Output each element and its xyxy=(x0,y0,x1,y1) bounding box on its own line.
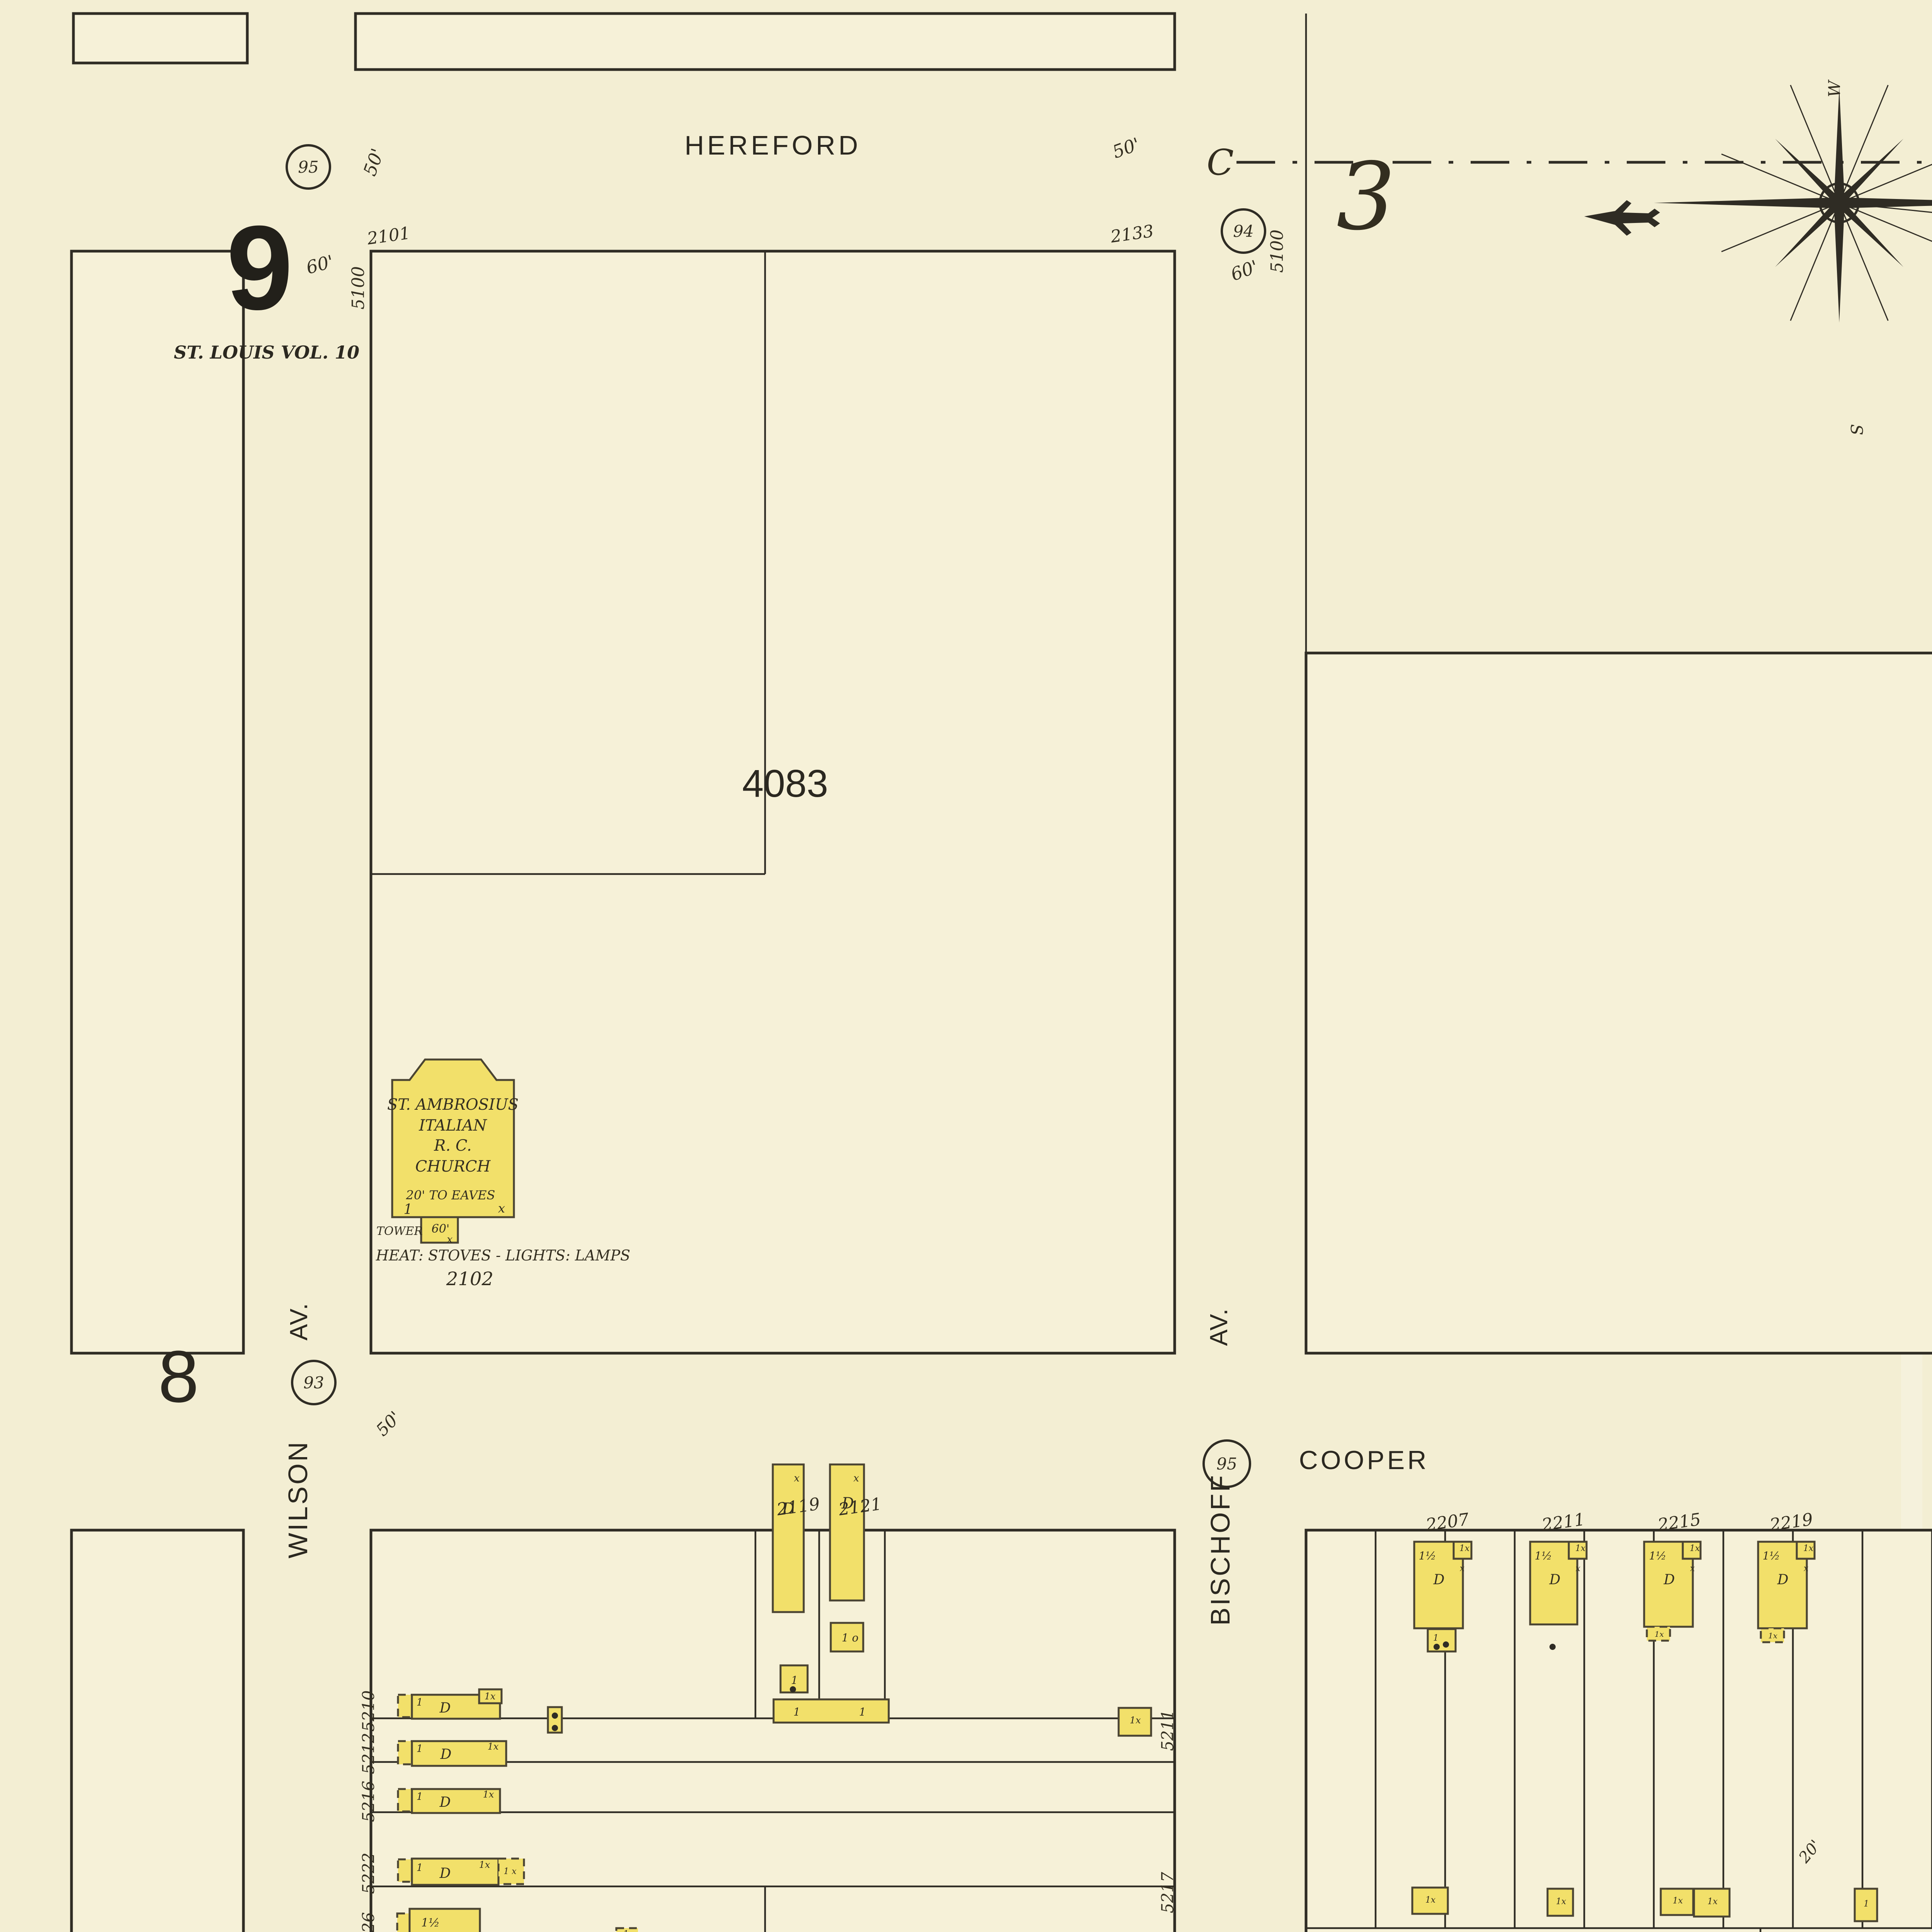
building-annotation-label: D xyxy=(1549,1572,1561,1588)
page-number-label: 8 xyxy=(158,1336,199,1418)
city-block-outline xyxy=(355,14,1175,70)
street-name-label: BISCHOFF xyxy=(1205,1473,1235,1626)
building-annotation-label: x xyxy=(1804,1564,1809,1573)
lot-number-label: 5100 xyxy=(349,266,368,310)
building-annotation-label: 1 xyxy=(417,1791,423,1803)
lot-number-label: 5216 xyxy=(359,1781,378,1822)
building-annotation-label: D xyxy=(439,1794,451,1810)
building-annotation-label: 1x xyxy=(1556,1897,1566,1906)
compass-center-dot xyxy=(1835,199,1843,207)
building-annotation-label: 1 xyxy=(417,1743,423,1755)
building-annotation-label: 1x xyxy=(1673,1896,1683,1906)
dimension-label: 20' TO EAVES xyxy=(406,1188,495,1202)
building-annotation-label: 1x xyxy=(485,1691,496,1702)
city-block-outline xyxy=(1306,653,1932,1353)
building-annotation-label: 1½ xyxy=(1535,1549,1552,1562)
lot-number-label: 5210 xyxy=(359,1690,378,1732)
building-annotation-label: 1 xyxy=(791,1674,798,1687)
building-annotation-label: 1 o xyxy=(842,1631,859,1644)
city-block-outline xyxy=(71,1530,243,1932)
building-opening-dot xyxy=(1434,1644,1440,1650)
building-opening-dot xyxy=(552,1713,558,1719)
building-annotation-label: 3 xyxy=(1337,143,1396,251)
building-annotation-label: 1x xyxy=(1708,1897,1718,1906)
building-annotation-label: TOWER xyxy=(376,1225,423,1238)
lot-number-label: 5226 xyxy=(359,1912,378,1932)
street-name-label: WILSON xyxy=(283,1440,313,1558)
building-annotation-label: x xyxy=(794,1473,800,1484)
page-number-label: AV. xyxy=(285,1303,313,1341)
page-number-label: AV. xyxy=(1205,1308,1233,1346)
building-annotation-label: 1½ xyxy=(1649,1549,1667,1562)
building-footprint xyxy=(398,1789,412,1811)
building-annotation-label: D xyxy=(439,1700,451,1716)
building-annotation-label: 1½ xyxy=(421,1916,440,1930)
building-annotation-label: x xyxy=(447,1234,453,1245)
building-annotation-label: 1½ xyxy=(1763,1549,1780,1562)
building-annotation-label: 1 xyxy=(417,1862,423,1874)
building-annotation-label: 1x xyxy=(1425,1895,1436,1905)
building-annotation-label: C xyxy=(1207,142,1234,183)
sheet-reference-number: 95 xyxy=(1216,1454,1237,1473)
street-name-label: 4083 xyxy=(742,762,828,805)
building-footprint xyxy=(398,1741,412,1764)
building-annotation-label: D xyxy=(1433,1572,1445,1588)
building-annotation-label: ITALIAN xyxy=(418,1117,487,1134)
building-annotation-label: 1x xyxy=(479,1859,490,1870)
building-annotation-label: 1 xyxy=(859,1706,866,1718)
building-annotation-label: 1x xyxy=(1655,1629,1664,1639)
building-footprint xyxy=(830,1464,864,1600)
building-annotation-label: 1 xyxy=(404,1202,413,1218)
building-annotation-label: 1x xyxy=(623,1929,634,1932)
page-number-label: 9 xyxy=(226,201,293,335)
city-block-outline xyxy=(1306,1530,1932,1932)
building-annotation-label: 1x xyxy=(1575,1544,1586,1553)
building-annotation-label: 1x xyxy=(1803,1544,1814,1553)
building-footprint xyxy=(1428,1629,1456,1651)
building-opening-dot xyxy=(1549,1644,1556,1650)
building-annotation-label: x xyxy=(1460,1564,1465,1573)
street-name-label: HEREFORD xyxy=(685,130,861,160)
map-canvas: 1212D1B11 oxx1212D1B11 oxx1212D1B11 oxx1… xyxy=(0,0,1932,1932)
building-annotation-label: 1½ xyxy=(1419,1549,1436,1562)
building-annotation-label: S xyxy=(1847,424,1866,435)
building-opening-dot xyxy=(552,1725,558,1731)
building-annotation-label: 1x xyxy=(1130,1715,1141,1726)
lot-number-label: 5222 xyxy=(359,1853,378,1894)
lot-number-label: 5100 xyxy=(1267,230,1287,273)
lot-number-label: 2102 xyxy=(446,1268,493,1290)
building-annotation-label: 1x xyxy=(1690,1544,1700,1553)
building-annotation-label: 1 xyxy=(1864,1899,1869,1909)
lot-number-label: 5212 xyxy=(359,1733,378,1774)
building-annotation-label: 1x xyxy=(483,1789,494,1800)
building-annotation-label: x xyxy=(1690,1564,1695,1573)
lot-number-label: 5217 xyxy=(1158,1872,1177,1913)
building-annotation-label: D xyxy=(782,1500,794,1518)
building-annotation-label: D xyxy=(439,1866,451,1881)
building-annotation-label: D xyxy=(841,1495,854,1512)
building-footprint xyxy=(410,1909,480,1932)
building-annotation-label: W xyxy=(1825,79,1844,97)
city-block-outline xyxy=(71,251,243,1353)
sanborn-fire-insurance-map-sheet: 1212D1B11 oxx1212D1B11 oxx1212D1B11 oxx1… xyxy=(0,0,1932,1932)
building-annotation-label: x xyxy=(498,1201,505,1216)
building-annotation-label: 1 xyxy=(793,1706,800,1718)
sheet-reference-number: 94 xyxy=(1233,222,1253,241)
building-annotation-label: x xyxy=(1576,1564,1581,1573)
building-annotation-label: 1 xyxy=(417,1697,423,1708)
building-annotation-label: 1x xyxy=(488,1741,499,1752)
building-annotation-label: CHURCH xyxy=(415,1158,491,1175)
building-annotation-label: D xyxy=(440,1747,452,1762)
building-annotation-label: D xyxy=(1777,1572,1789,1588)
building-annotation-label: ST. LOUIS VOL. 10 xyxy=(174,342,359,363)
building-annotation-label: ST. AMBROSIUS xyxy=(387,1096,519,1114)
building-annotation-label: 1x xyxy=(1768,1631,1777,1640)
city-block-outline xyxy=(73,14,247,63)
building-opening-dot xyxy=(790,1686,796,1692)
building-annotation-label: 1x xyxy=(1459,1544,1470,1553)
building-annotation-label: x xyxy=(854,1473,859,1484)
building-annotation-label: R. C. xyxy=(434,1137,471,1155)
building-annotation-label: HEAT: STOVES - LIGHTS: LAMPS xyxy=(376,1247,630,1264)
sheet-reference-number: 93 xyxy=(303,1373,324,1392)
building-annotation-label: 1 xyxy=(1433,1633,1439,1643)
building-footprint xyxy=(398,1695,412,1717)
building-annotation-label: 1 x xyxy=(503,1867,517,1876)
building-annotation-label: D xyxy=(1663,1572,1675,1588)
building-footprint xyxy=(397,1913,410,1932)
lot-number-label: 5211 xyxy=(1158,1710,1177,1751)
building-footprint xyxy=(773,1464,804,1612)
building-footprint xyxy=(398,1859,412,1882)
building-footprint xyxy=(774,1699,889,1723)
street-name-label: COOPER xyxy=(1299,1446,1429,1475)
building-opening-dot xyxy=(1443,1641,1449,1648)
sheet-reference-number: 95 xyxy=(298,158,318,177)
